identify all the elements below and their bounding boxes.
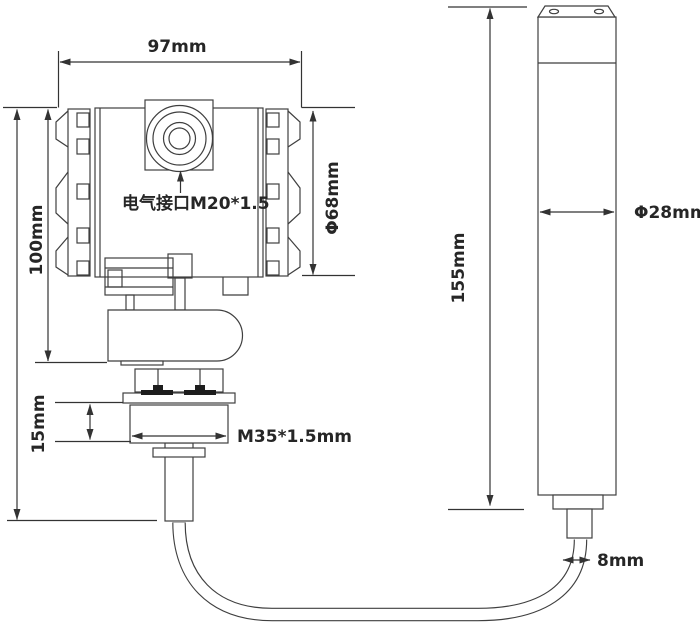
dim-label-cable-diameter: 8mm [597,551,644,571]
cable [179,522,581,614]
dim-label-thread-height: 15mm [29,394,49,453]
dim-label-housing-height: 100mm [27,205,47,276]
dim-label-housing-diameter: Φ68mm [323,161,343,235]
dim-probe-length: 155mm [448,7,527,510]
hex-nut-section [135,369,223,392]
electrical-port-label: 电气接口M20*1.5 [122,193,270,214]
fin [56,172,68,224]
washer [153,448,205,457]
fin [56,111,68,147]
cable-gland [567,509,592,538]
electrical-connector [145,100,213,172]
dim-label-thread-spec: M35*1.5mm [237,427,352,447]
left-end-cap [56,109,90,276]
bolt-head [153,385,163,390]
dim-housing-diameter: Φ68mm [302,111,355,276]
transmitter-housing [56,100,300,521]
fin [288,172,300,224]
mounting-flange [123,393,235,403]
probe [538,6,616,538]
right-end-cap [266,109,300,276]
dim-housing-width: 97mm [59,37,302,108]
dimension-drawing-page: 97mm 100mm Φ68mm 15mm [0,0,700,629]
fin [56,237,68,275]
gasket-bar [141,390,173,395]
probe-step [553,495,603,509]
bolt-head [195,385,205,390]
probe-body [538,17,616,495]
fin [288,111,300,147]
process-connection [108,310,243,365]
dim-label-probe-diameter: Φ28mm [634,203,700,223]
dimension-drawing: 97mm 100mm Φ68mm 15mm [0,0,700,629]
fin [288,237,300,275]
thread-collar [130,405,228,443]
dim-label-probe-length: 155mm [449,233,469,304]
gasket-bar [184,390,216,395]
dim-label-housing-width: 97mm [147,37,206,57]
dim-thread-height: 15mm [29,394,131,453]
